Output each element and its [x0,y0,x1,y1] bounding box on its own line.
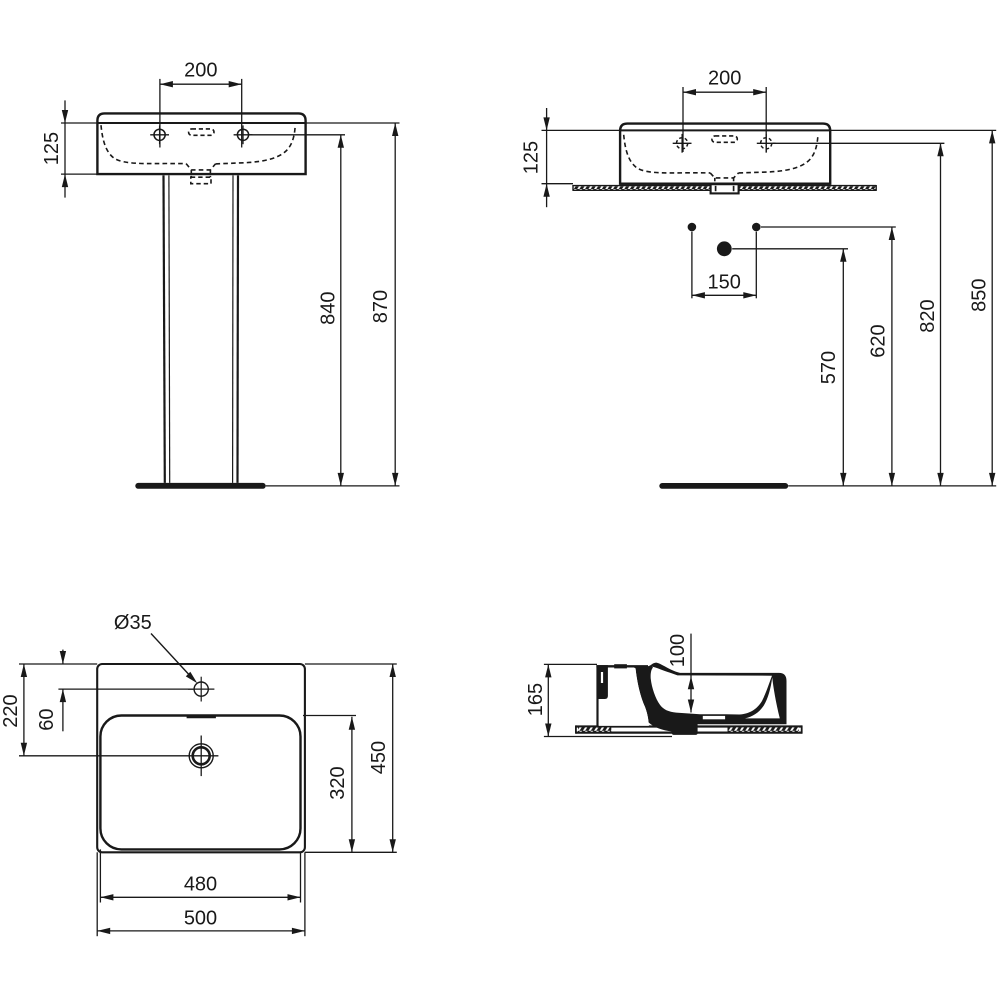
svg-text:220: 220 [0,694,22,727]
svg-text:100: 100 [667,634,689,667]
svg-text:165: 165 [525,683,547,716]
svg-text:500: 500 [184,907,217,929]
svg-text:Ø35: Ø35 [114,612,152,634]
svg-text:320: 320 [327,766,349,799]
svg-text:850: 850 [969,279,991,312]
svg-text:150: 150 [708,272,741,294]
svg-text:870: 870 [370,290,392,323]
svg-text:480: 480 [184,873,217,895]
svg-text:125: 125 [41,132,63,165]
svg-text:820: 820 [917,299,939,332]
svg-text:570: 570 [818,351,840,384]
svg-text:200: 200 [708,67,741,89]
svg-text:840: 840 [318,292,340,325]
svg-text:450: 450 [368,741,390,774]
svg-text:620: 620 [867,324,889,357]
svg-text:125: 125 [521,141,543,174]
svg-text:200: 200 [184,59,217,81]
svg-text:60: 60 [36,708,58,730]
